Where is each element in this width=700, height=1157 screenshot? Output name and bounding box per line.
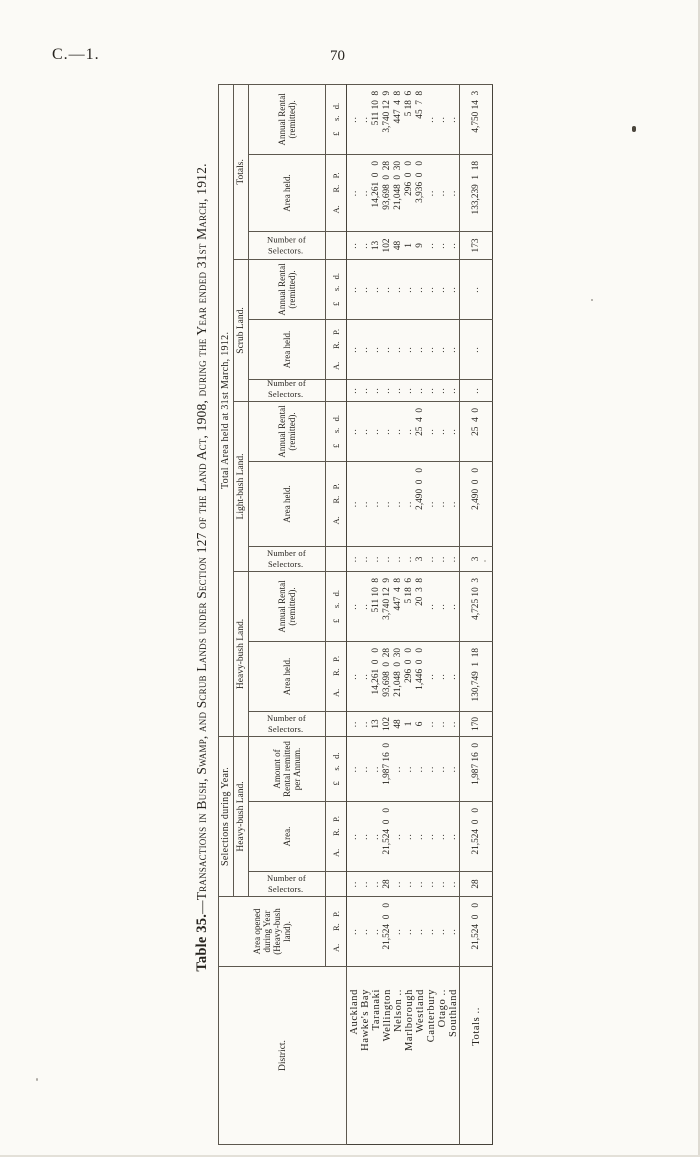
empty-cell: .. <box>448 84 460 154</box>
unit-arp-heavy: A. R. P. <box>326 641 347 711</box>
rotated-title-strip: Table 35.—Transactions in Bush, Swamp, a… <box>194 85 216 1050</box>
value-cell: 511 10 8 <box>371 84 382 154</box>
empty-cell: .. <box>448 802 460 872</box>
empty-cell: .. <box>426 259 437 319</box>
value-cell: 130,749 1 18 <box>460 641 493 711</box>
empty-cell: .. <box>437 711 448 736</box>
empty-cell: .. <box>404 319 415 379</box>
value-cell: 296 0 0 <box>404 641 415 711</box>
empty-cell: .. <box>426 641 437 711</box>
row-label-district: Southland <box>448 967 460 1145</box>
unit-blank <box>326 379 347 401</box>
empty-cell: .. <box>360 401 371 461</box>
value-cell: 14,261 0 0 <box>371 641 382 711</box>
empty-cell: .. <box>448 736 460 801</box>
empty-cell: .. <box>437 154 448 231</box>
col-header-area-opened: Area opened during Year (Heavy-bush land… <box>219 897 326 967</box>
empty-cell: .. <box>426 897 437 967</box>
col-header-selectors-heavy: Number of Selectors. <box>249 711 326 736</box>
col-header-selectors-selections: Number of Selectors. <box>249 872 326 897</box>
row-label-district: Otago .. <box>437 967 448 1145</box>
empty-cell: .. <box>347 461 361 546</box>
empty-cell: .. <box>448 872 460 897</box>
empty-cell: .. <box>448 259 460 319</box>
empty-cell: .. <box>360 872 371 897</box>
empty-cell: .. <box>437 736 448 801</box>
empty-cell: .. <box>437 897 448 967</box>
empty-cell: .. <box>415 897 426 967</box>
page-number: 70 <box>330 48 345 65</box>
empty-cell: .. <box>393 872 404 897</box>
value-cell: 4,725 10 3 <box>460 571 493 641</box>
empty-cell: .. <box>360 84 371 154</box>
empty-cell: .. <box>437 872 448 897</box>
col-header-district: District. <box>219 967 347 1145</box>
empty-cell: .. <box>360 736 371 801</box>
scanned-document-page: C.—1. 70 Table 35.—Transactions in Bush,… <box>0 0 700 1157</box>
empty-cell: .. <box>371 802 382 872</box>
unit-arp-area-opened: A. R. P. <box>326 897 347 967</box>
row-label-district: Auckland <box>347 967 361 1145</box>
value-cell: 21,524 0 0 <box>382 897 393 967</box>
empty-cell: .. <box>371 461 382 546</box>
group-header-total-area: Total Area held at 31st March, 1912. <box>219 84 234 736</box>
unit-lsd-scrub: £ s. d. <box>326 259 347 319</box>
empty-cell: .. <box>448 571 460 641</box>
empty-cell: .. <box>360 154 371 231</box>
col-header-rental-selections: Amount of Rental remitted per Annum. <box>249 736 326 801</box>
empty-cell: .. <box>347 154 361 231</box>
empty-cell: .. <box>426 319 437 379</box>
empty-cell: .. <box>371 897 382 967</box>
empty-cell: .. <box>371 319 382 379</box>
empty-cell: .. <box>360 711 371 736</box>
empty-cell: .. <box>371 736 382 801</box>
empty-cell: .. <box>448 319 460 379</box>
value-cell: 3 <box>415 546 426 571</box>
col-header-annual-rental-light: Annual Rental (remitted). <box>249 401 326 461</box>
empty-cell: .. <box>415 319 426 379</box>
empty-cell: .. <box>347 897 361 967</box>
empty-cell: .. <box>448 231 460 259</box>
col-header-area-held-light: Area held. <box>249 461 326 546</box>
empty-cell: .. <box>404 259 415 319</box>
unit-lsd-light: £ s. d. <box>326 401 347 461</box>
table-title-lead: Table 35. <box>194 914 210 972</box>
value-cell: 1 <box>404 231 415 259</box>
value-cell: 3 <box>460 546 493 571</box>
unit-blank <box>326 711 347 736</box>
unit-lsd-selections: £ s. d. <box>326 736 347 801</box>
value-cell: 5 18 6 <box>404 84 415 154</box>
empty-cell: .. <box>371 872 382 897</box>
col-header-selectors-totals: Number of Selectors. <box>249 231 326 259</box>
unit-arp-selections: A. R. P. <box>326 802 347 872</box>
empty-cell: .. <box>437 84 448 154</box>
empty-cell: .. <box>448 546 460 571</box>
empty-cell: .. <box>393 461 404 546</box>
row-label-district: Wellington <box>382 967 393 1145</box>
empty-cell: .. <box>371 401 382 461</box>
empty-cell: .. <box>404 401 415 461</box>
empty-cell: .. <box>360 461 371 546</box>
value-cell: 45 7 8 <box>415 84 426 154</box>
value-cell: 6 <box>415 711 426 736</box>
empty-cell: .. <box>393 802 404 872</box>
empty-cell: .. <box>347 259 361 319</box>
empty-cell: .. <box>347 401 361 461</box>
empty-cell: .. <box>360 897 371 967</box>
empty-cell: .. <box>426 401 437 461</box>
empty-cell: .. <box>347 872 361 897</box>
empty-cell: .. <box>360 802 371 872</box>
empty-cell: .. <box>347 379 361 401</box>
empty-cell: .. <box>426 379 437 401</box>
empty-cell: .. <box>426 872 437 897</box>
empty-cell: .. <box>347 84 361 154</box>
empty-cell: .. <box>347 736 361 801</box>
value-cell: 102 <box>382 231 393 259</box>
value-cell: 2,490 0 0 <box>415 461 426 546</box>
empty-cell: .. <box>448 711 460 736</box>
col-header-selectors-light: Number of Selectors. <box>249 546 326 571</box>
empty-cell: .. <box>382 379 393 401</box>
empty-cell: .. <box>360 231 371 259</box>
col-header-area-held-totals: Area held. <box>249 154 326 231</box>
value-cell: 25 4 0 <box>460 401 493 461</box>
empty-cell: .. <box>393 319 404 379</box>
value-cell: 3,740 12 9 <box>382 571 393 641</box>
empty-cell: .. <box>415 872 426 897</box>
empty-cell: .. <box>382 319 393 379</box>
empty-cell: .. <box>404 736 415 801</box>
value-cell: 13 <box>371 711 382 736</box>
value-cell: 1,987 16 0 <box>382 736 393 801</box>
empty-cell: .. <box>347 641 361 711</box>
empty-cell: .. <box>448 641 460 711</box>
value-cell: 21,524 0 0 <box>382 802 393 872</box>
empty-cell: .. <box>404 802 415 872</box>
empty-cell: .. <box>404 897 415 967</box>
value-cell: 25 4 0 <box>415 401 426 461</box>
scan-speck <box>484 560 486 562</box>
value-cell: 173 <box>460 231 493 259</box>
col-header-annual-rental-heavy: Annual Rental (remitted). <box>249 571 326 641</box>
unit-arp-scrub: A. R. P. <box>326 319 347 379</box>
value-cell: 3,936 0 0 <box>415 154 426 231</box>
empty-cell: .. <box>382 401 393 461</box>
empty-cell: .. <box>460 259 493 319</box>
empty-cell: .. <box>360 641 371 711</box>
unit-lsd-totals: £ s. d. <box>326 84 347 154</box>
col-header-annual-rental-scrub: Annual Rental (remitted). <box>249 259 326 319</box>
subgroup-scrub: Scrub Land. <box>234 259 249 401</box>
empty-cell: .. <box>360 319 371 379</box>
value-cell: 93,698 0 28 <box>382 641 393 711</box>
value-cell: 447 4 8 <box>393 571 404 641</box>
empty-cell: .. <box>347 231 361 259</box>
empty-cell: .. <box>371 259 382 319</box>
value-cell: 447 4 8 <box>393 84 404 154</box>
empty-cell: .. <box>437 802 448 872</box>
empty-cell: .. <box>404 461 415 546</box>
value-cell: 170 <box>460 711 493 736</box>
empty-cell: .. <box>360 379 371 401</box>
row-label-totals: Totals .. <box>460 967 493 1145</box>
empty-cell: .. <box>347 711 361 736</box>
value-cell: 14,261 0 0 <box>371 154 382 231</box>
empty-cell: .. <box>415 259 426 319</box>
document-reference: C.—1. <box>52 46 100 64</box>
unit-blank <box>326 231 347 259</box>
empty-cell: .. <box>437 546 448 571</box>
empty-cell: .. <box>393 259 404 319</box>
empty-cell: .. <box>460 319 493 379</box>
empty-cell: .. <box>437 571 448 641</box>
value-cell: 511 10 8 <box>371 571 382 641</box>
row-label-district: Westland <box>415 967 426 1145</box>
value-cell: 3,740 12 9 <box>382 84 393 154</box>
empty-cell: .. <box>382 461 393 546</box>
empty-cell: .. <box>347 319 361 379</box>
value-cell: 1,987 16 0 <box>460 736 493 801</box>
table-title: Table 35.—Transactions in Bush, Swamp, a… <box>194 85 214 1050</box>
empty-cell: .. <box>437 379 448 401</box>
empty-cell: .. <box>460 379 493 401</box>
empty-cell: .. <box>437 401 448 461</box>
empty-cell: .. <box>415 802 426 872</box>
unit-lsd-heavy: £ s. d. <box>326 571 347 641</box>
empty-cell: .. <box>371 546 382 571</box>
group-header-selections: Selections during Year. <box>219 736 234 896</box>
empty-cell: .. <box>347 802 361 872</box>
empty-cell: .. <box>347 546 361 571</box>
empty-cell: .. <box>437 259 448 319</box>
col-header-area-held-heavy: Area held. <box>249 641 326 711</box>
empty-cell: .. <box>426 154 437 231</box>
empty-cell: .. <box>448 897 460 967</box>
value-cell: 13 <box>371 231 382 259</box>
value-cell: 1,446 0 0 <box>415 641 426 711</box>
row-label-district: Hawke's Bay <box>360 967 371 1145</box>
empty-cell: .. <box>426 736 437 801</box>
empty-cell: .. <box>393 546 404 571</box>
scan-speck <box>36 1078 38 1081</box>
value-cell: 9 <box>415 231 426 259</box>
col-header-annual-rental-totals: Annual Rental (remitted). <box>249 84 326 154</box>
empty-cell: .. <box>404 546 415 571</box>
empty-cell: .. <box>393 897 404 967</box>
scan-speck <box>632 126 636 132</box>
value-cell: 2,490 0 0 <box>460 461 493 546</box>
row-label-district: Nelson .. <box>393 967 404 1145</box>
row-label-district: Canterbury <box>426 967 437 1145</box>
unit-arp-light: A. R. P. <box>326 461 347 546</box>
value-cell: 1 <box>404 711 415 736</box>
empty-cell: .. <box>360 571 371 641</box>
empty-cell: .. <box>404 379 415 401</box>
empty-cell: .. <box>426 711 437 736</box>
rotated-table-area: District. Area opened during Year (Heavy… <box>218 85 498 1145</box>
empty-cell: .. <box>448 379 460 401</box>
value-cell: 48 <box>393 231 404 259</box>
empty-cell: .. <box>448 461 460 546</box>
unit-blank <box>326 872 347 897</box>
empty-cell: .. <box>437 231 448 259</box>
empty-cell: .. <box>404 872 415 897</box>
empty-cell: .. <box>426 802 437 872</box>
empty-cell: .. <box>426 461 437 546</box>
value-cell: 4,750 14 3 <box>460 84 493 154</box>
value-cell: 20 3 8 <box>415 571 426 641</box>
value-cell: 5 18 6 <box>404 571 415 641</box>
empty-cell: .. <box>448 401 460 461</box>
scan-speck <box>591 299 593 301</box>
empty-cell: .. <box>426 231 437 259</box>
transactions-table: District. Area opened during Year (Heavy… <box>218 84 493 1145</box>
value-cell: 21,048 0 30 <box>393 154 404 231</box>
rotated-table: District. Area opened during Year (Heavy… <box>218 85 493 1145</box>
unit-arp-totals: A. R. P. <box>326 154 347 231</box>
subgroup-heavy-bush-selections: Heavy-bush Land. <box>234 736 249 896</box>
empty-cell: .. <box>426 84 437 154</box>
value-cell: 93,698 0 28 <box>382 154 393 231</box>
empty-cell: .. <box>426 571 437 641</box>
value-cell: 133,239 1 18 <box>460 154 493 231</box>
empty-cell: .. <box>393 736 404 801</box>
row-label-district: Marlborough <box>404 967 415 1145</box>
col-header-area-held-scrub: Area held. <box>249 319 326 379</box>
value-cell: 21,524 0 0 <box>460 897 493 967</box>
empty-cell: .. <box>347 571 361 641</box>
empty-cell: .. <box>360 546 371 571</box>
value-cell: 28 <box>460 872 493 897</box>
unit-blank <box>326 546 347 571</box>
col-header-area-selections: Area. <box>249 802 326 872</box>
empty-cell: .. <box>371 379 382 401</box>
empty-cell: .. <box>437 319 448 379</box>
col-header-selectors-scrub: Number of Selectors. <box>249 379 326 401</box>
empty-cell: .. <box>437 641 448 711</box>
empty-cell: .. <box>415 736 426 801</box>
empty-cell: .. <box>448 154 460 231</box>
empty-cell: .. <box>426 546 437 571</box>
empty-cell: .. <box>382 259 393 319</box>
empty-cell: .. <box>360 259 371 319</box>
value-cell: 102 <box>382 711 393 736</box>
empty-cell: .. <box>393 401 404 461</box>
table-title-rest: —Transactions in Bush, Swamp, and Scrub … <box>194 163 209 914</box>
row-label-district: Taranaki <box>371 967 382 1145</box>
value-cell: 48 <box>393 711 404 736</box>
subgroup-light-bush: Light-bush Land. <box>234 401 249 571</box>
value-cell: 296 0 0 <box>404 154 415 231</box>
value-cell: 21,048 0 30 <box>393 641 404 711</box>
empty-cell: .. <box>382 546 393 571</box>
value-cell: 21,524 0 0 <box>460 802 493 872</box>
subgroup-totals: Totals. <box>234 84 249 259</box>
subgroup-heavy-bush-held: Heavy-bush Land. <box>234 571 249 736</box>
empty-cell: .. <box>437 461 448 546</box>
empty-cell: .. <box>393 379 404 401</box>
value-cell: 28 <box>382 872 393 897</box>
empty-cell: .. <box>415 379 426 401</box>
